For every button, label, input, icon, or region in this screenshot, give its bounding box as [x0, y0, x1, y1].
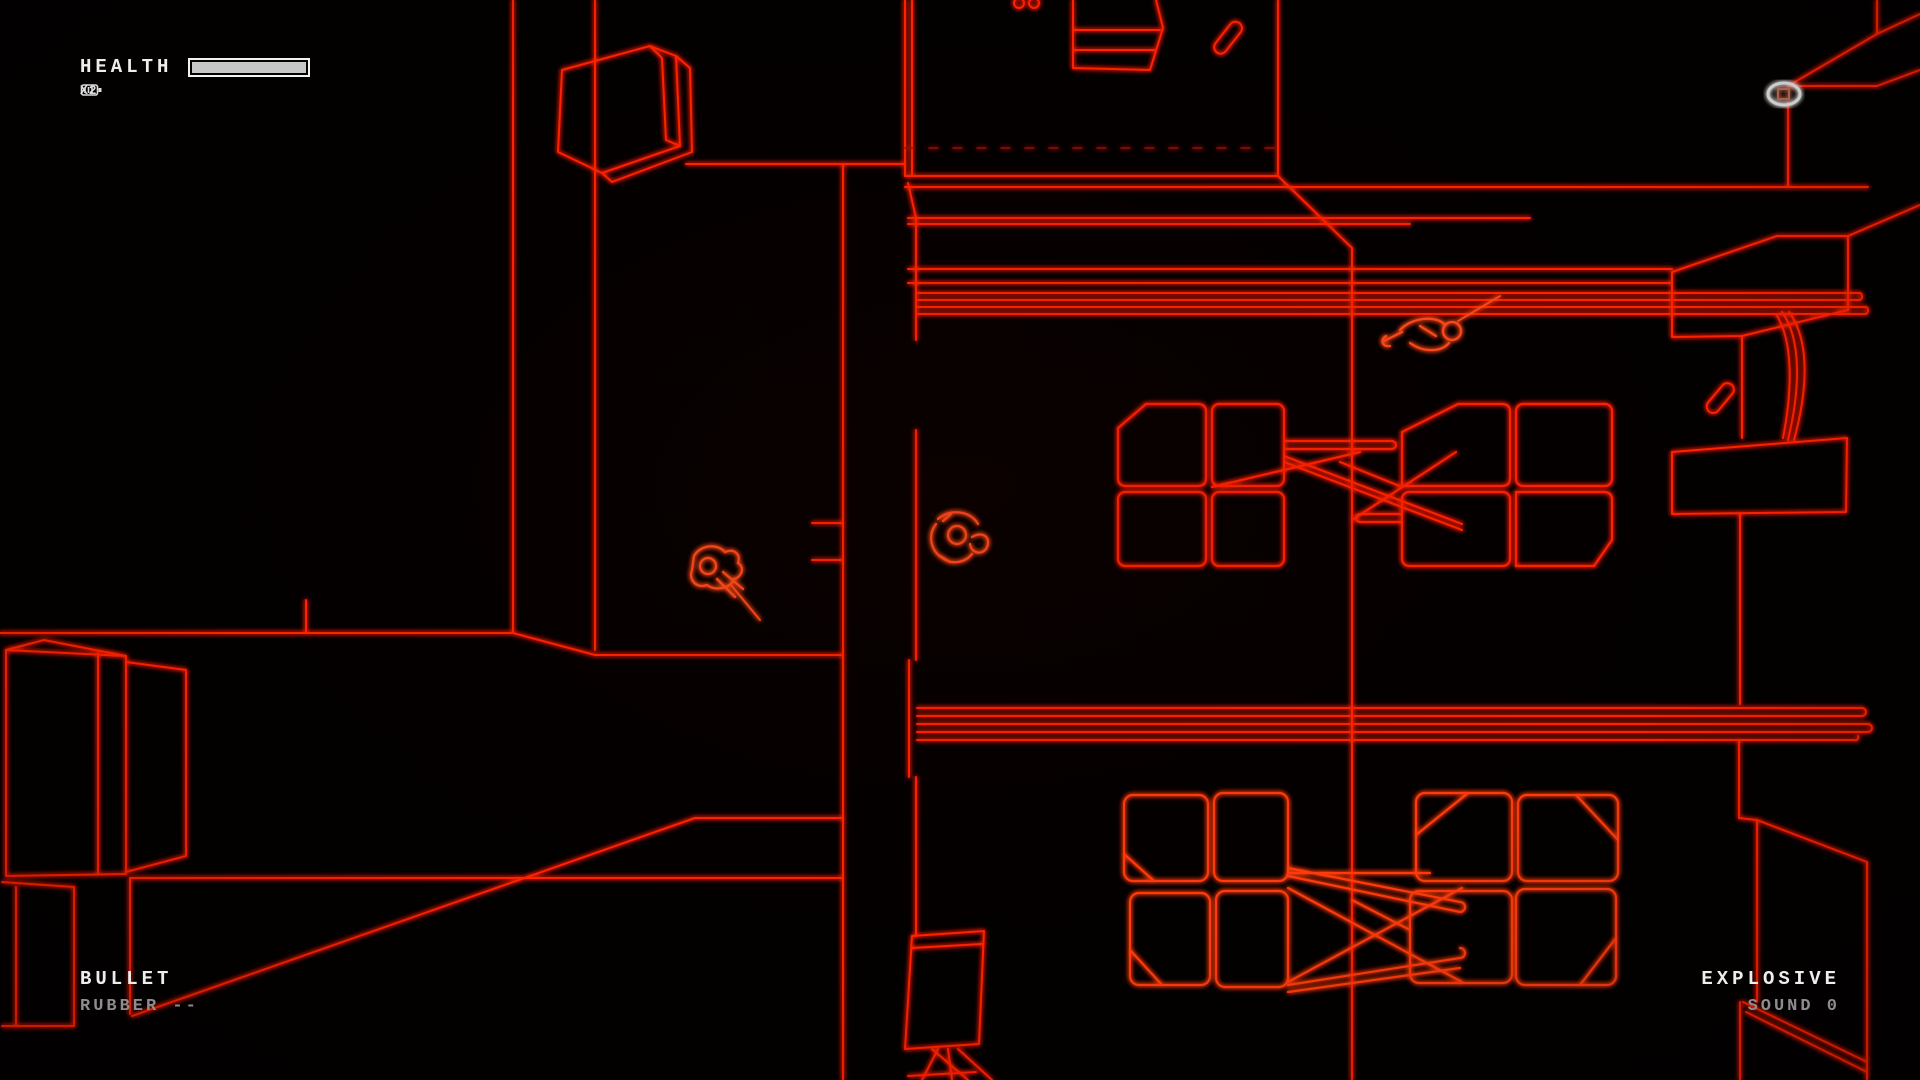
- bunk-beds-upper: [1118, 404, 1612, 566]
- bullet-title: BULLET: [80, 968, 199, 990]
- explosive-loadout: SOUND 0: [1701, 997, 1840, 1016]
- level-wireframe: [0, 0, 1920, 1080]
- health-bar: [188, 58, 310, 77]
- explosive-panel: EXPLOSIVE SOUND 0: [1701, 968, 1840, 1016]
- game-viewport[interactable]: HEALTH X2 BULLET RUBBER -- EXPLOSIVE SOU…: [0, 0, 1920, 1080]
- wall-corridor: [686, 0, 916, 1080]
- window-slats-lower: [917, 708, 1872, 740]
- wall-bottom-right: [1739, 740, 1867, 1080]
- magazine-icon: [80, 83, 104, 97]
- window-slats-upper: [917, 293, 1868, 314]
- highlighted-pickup: [1768, 83, 1800, 105]
- crate: [558, 46, 692, 182]
- downed-enemy: [1383, 296, 1500, 350]
- health-bar-fill: [192, 62, 306, 73]
- structure-top-right: [1788, 0, 1920, 187]
- bullet-loadout: RUBBER --: [80, 997, 199, 1016]
- wall-north-long: [905, 187, 1868, 283]
- health-label: HEALTH: [80, 56, 172, 78]
- cabinet-bottom: [905, 931, 992, 1080]
- explosive-title: EXPLOSIVE: [1701, 968, 1840, 990]
- magazine-hud: X2: [80, 83, 98, 98]
- cabinet-top-room: [1014, 0, 1163, 70]
- desk-right: [1672, 205, 1920, 704]
- second-character: [931, 512, 988, 562]
- wall-left: [0, 0, 843, 655]
- player-character: [691, 546, 760, 620]
- weapon-pickup-right: [1704, 380, 1736, 415]
- bullet-panel: BULLET RUBBER --: [80, 968, 199, 1016]
- bunk-beds-lower: [1124, 793, 1618, 992]
- health-hud: HEALTH: [80, 56, 310, 78]
- room-top: [905, 0, 1352, 248]
- weapon-pickup-top-room: [1212, 19, 1245, 56]
